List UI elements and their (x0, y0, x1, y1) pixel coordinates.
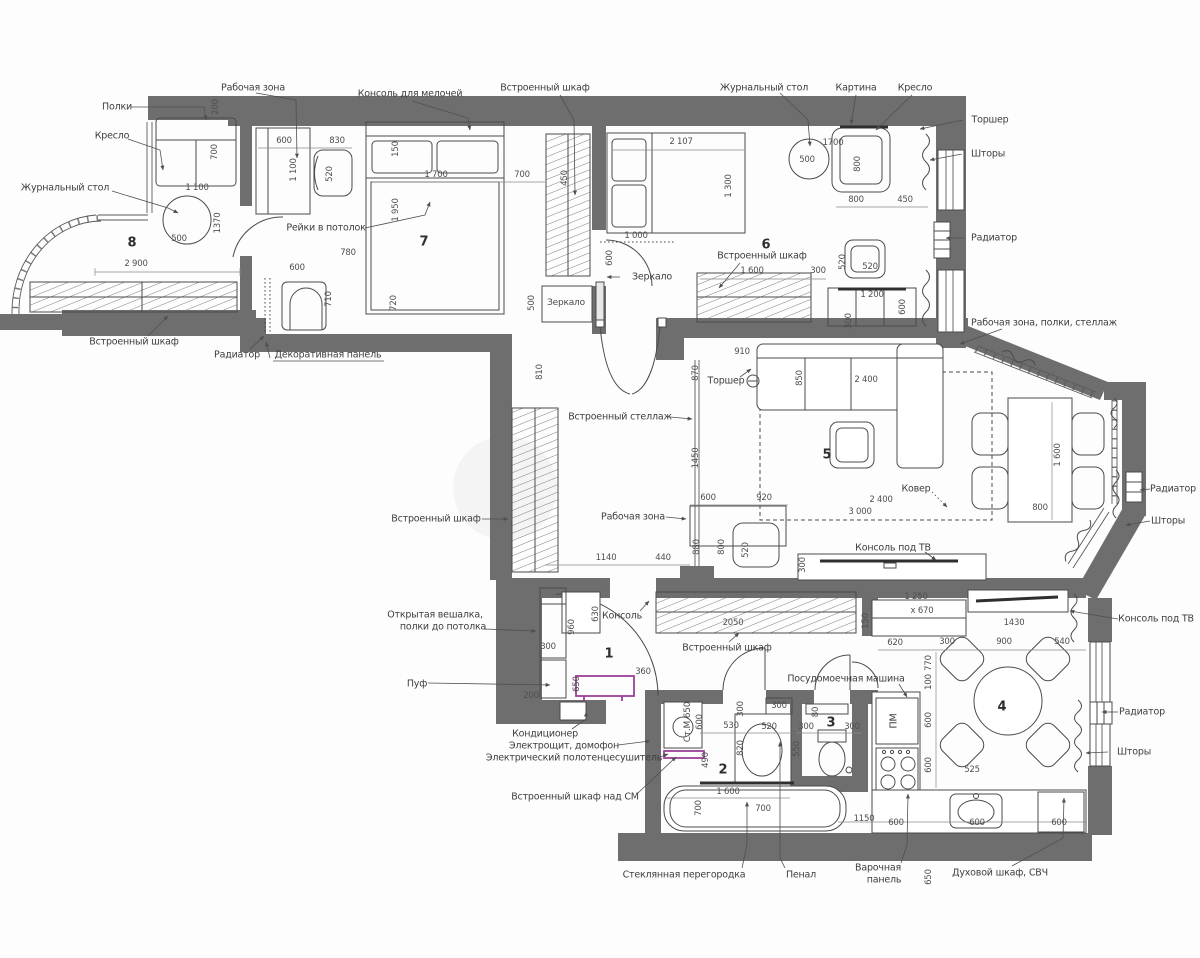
dimension-53: 300 (798, 557, 808, 573)
annotation-label-36: Электрический полотенцесушитель (486, 753, 662, 764)
dimension-30: 300 (810, 266, 826, 276)
annotation-label-35: Электрощит, домофон (509, 741, 619, 752)
dimension-49: 800 (717, 539, 727, 555)
dimension-16: 600 (289, 263, 305, 273)
annotation-label-43: Варочная (855, 863, 901, 874)
room-number-4: 4 (997, 700, 1006, 715)
annotation-label-41: Стеклянная перегородка (623, 870, 746, 881)
dimension-50: 520 (741, 542, 751, 558)
dimension-78: 1430 (1004, 618, 1025, 628)
dimension-87: 525 (964, 765, 980, 775)
annotation-label-12: Рейки в потолок (286, 223, 365, 234)
annotation-label-38: Посудомоечная машина (787, 674, 904, 685)
dimension-12: 700 (514, 170, 530, 180)
annotation-label-14: Радиатор (214, 350, 260, 361)
dimension-36: 810 (535, 364, 545, 380)
annotation-label-7: Картина (836, 83, 877, 94)
text-overlay: 87651234ПолкиКреслоЖурнальный столРабоча… (0, 0, 1200, 958)
dimension-54: 960 (567, 619, 577, 635)
annotation-label-47: ПМ (889, 714, 900, 729)
annotation-label-45: Духовой шкаф, СВЧ (952, 868, 1048, 879)
dimension-5: 2 900 (124, 259, 147, 269)
dimension-8: 1 100 (289, 158, 299, 181)
dimension-79: 620 (887, 638, 903, 648)
annotation-label-25: Радиатор (1150, 484, 1196, 495)
annotation-label-8: Кресло (898, 83, 933, 94)
dimension-76: 1 250 (904, 592, 927, 602)
dimension-65: 300 (736, 701, 746, 717)
dimension-6: 600 (276, 136, 292, 146)
dimension-90: 600 (969, 818, 985, 828)
dimension-56: 300 (540, 642, 556, 652)
annotation-label-33: Пуф (407, 679, 427, 690)
annotation-label-21: Торшер (707, 376, 744, 387)
room-number-3: 3 (826, 716, 835, 731)
dimension-28: 450 (897, 195, 913, 205)
annotation-label-5: Встроенный шкаф (500, 83, 589, 94)
floor-plan: 87651234ПолкиКреслоЖурнальный столРабоча… (0, 0, 1200, 958)
dimension-77: х 670 (911, 606, 934, 616)
annotation-label-42: Пенал (786, 870, 816, 881)
dimension-11: 1 700 (424, 170, 447, 180)
dimension-69: 1 600 (716, 787, 739, 797)
dimension-29: 1 600 (740, 266, 763, 276)
dimension-26: 800 (853, 156, 863, 172)
dimension-71: 700 (755, 804, 771, 814)
dimension-73: 300 (844, 722, 860, 732)
annotation-label-4: Консоль для мелочей (358, 89, 463, 100)
annotation-label-31: Открытая вешалка, (387, 610, 483, 621)
annotation-label-24: Ковер (901, 484, 930, 495)
dimension-81: 900 (996, 637, 1012, 647)
annotation-label-23: Рабочая зона (601, 512, 665, 523)
dimension-35: 300 (844, 313, 854, 329)
annotation-label-19: Рабочая зона, полки, стеллаж (971, 318, 1117, 329)
dimension-59: 650 (572, 676, 582, 692)
annotation-label-10: Шторы (971, 149, 1005, 160)
dimension-19: 600 (605, 250, 615, 266)
dimension-83: 770 (924, 655, 934, 671)
room-number-8: 8 (127, 236, 136, 251)
dimension-18: 720 (389, 295, 399, 311)
dimension-52: 440 (655, 553, 671, 563)
dimension-63: 490 (701, 752, 711, 768)
annotation-label-22: Встроенный шкаф (391, 514, 480, 525)
room-number-7: 7 (419, 235, 428, 250)
dimension-67: 520 (761, 722, 777, 732)
dimension-31: 520 (838, 254, 848, 270)
annotation-label-15: Декоративная панель (275, 350, 382, 361)
dimension-57: 200 (523, 691, 539, 701)
dimension-47: 800 (1032, 503, 1048, 513)
dimension-24: 1700 (823, 138, 844, 148)
annotation-label-0: Полки (102, 102, 132, 113)
dimension-41: 850 (795, 370, 805, 386)
dimension-40: 2 400 (854, 375, 877, 385)
dimension-2: 1 100 (185, 183, 208, 193)
dimension-68: 300 (771, 701, 787, 711)
dimension-9: 520 (325, 166, 335, 182)
dimension-74: 80 (811, 707, 821, 717)
dimension-55: 630 (591, 606, 601, 622)
dimension-60: 2050 (723, 618, 744, 628)
dimension-62: 600 (695, 714, 705, 730)
dimension-13: 450 (560, 170, 570, 186)
dimension-82: 540 (1054, 637, 1070, 647)
dimension-23: 1 300 (724, 174, 734, 197)
annotation-label-28: Консоль (602, 611, 642, 622)
annotation-label-34: Кондиционер (512, 729, 578, 740)
dimension-66: 820 (736, 740, 746, 756)
dimension-43: 920 (756, 493, 772, 503)
annotation-label-20: Встроенный стеллаж (568, 412, 672, 423)
annotation-label-32: полки до потолка (400, 622, 486, 633)
dimension-22: 2 107 (669, 137, 692, 147)
dimension-27: 800 (848, 195, 864, 205)
room-number-1: 1 (604, 647, 613, 662)
annotation-label-13: Встроенный шкаф (89, 337, 178, 348)
dimension-32: 520 (862, 262, 878, 272)
room-number-2: 2 (718, 763, 727, 778)
annotation-label-3: Рабочая зона (221, 83, 285, 94)
annotation-label-1: Кресло (95, 131, 130, 142)
dimension-10: 150 (391, 141, 401, 157)
dimension-15: 780 (340, 248, 356, 258)
dimension-61: 150 (861, 613, 871, 629)
dimension-4: 1370 (213, 213, 223, 234)
dimension-45: 3 000 (848, 507, 871, 517)
annotation-label-16: Зеркало (632, 272, 672, 283)
dimension-46: 1 600 (1053, 443, 1063, 466)
dimension-42: 600 (700, 493, 716, 503)
dimension-14: 1 950 (391, 198, 401, 221)
dimension-75: 550 (792, 741, 802, 757)
dimension-1: 700 (210, 144, 220, 160)
dimension-25: 500 (799, 155, 815, 165)
dimension-21: 500 (527, 295, 537, 311)
dimension-84: 100 (924, 674, 934, 690)
dimension-89: 600 (888, 818, 904, 828)
annotation-label-37: Встроенный шкаф над СМ (511, 792, 639, 803)
annotation-label-9: Торшер (971, 115, 1008, 126)
annotation-label-6: Журнальный стол (720, 83, 808, 94)
dimension-80: 300 (939, 637, 955, 647)
dimension-72: 300 (798, 722, 814, 732)
dimension-34: 600 (898, 299, 908, 315)
dimension-91: 600 (1051, 818, 1067, 828)
dimension-64: 530 (723, 721, 739, 731)
dimension-7: 830 (329, 136, 345, 146)
dimension-88: 1150 (854, 814, 875, 824)
dimension-33: 1 200 (860, 290, 883, 300)
dimension-44: 2 400 (869, 495, 892, 505)
dimension-51: 1140 (596, 553, 617, 563)
annotation-label-17: Зеркало (547, 298, 585, 308)
dimension-3: 500 (171, 234, 187, 244)
annotation-label-2: Журнальный стол (21, 183, 109, 194)
annotation-label-18: Встроенный шкаф (717, 251, 806, 262)
annotation-label-29: Встроенный шкаф (682, 643, 771, 654)
dimension-0: 200 (211, 99, 221, 115)
dimension-86: 600 (924, 757, 934, 773)
annotation-label-39: Радиатор (1119, 707, 1165, 718)
dimension-37: 910 (734, 347, 750, 357)
annotation-label-30: Консоль под ТВ (1118, 614, 1194, 625)
dimension-92: 650 (924, 869, 934, 885)
dimension-85: 600 (924, 712, 934, 728)
dimension-58: 360 (635, 667, 651, 677)
annotation-label-40: Шторы (1117, 747, 1151, 758)
dimension-70: 700 (694, 800, 704, 816)
annotation-label-26: Шторы (1151, 516, 1185, 527)
annotation-label-44: панель (867, 875, 902, 886)
dimension-48: 880 (692, 539, 702, 555)
annotation-label-46: Ст.М 650 (683, 702, 693, 743)
dimension-38: 870 (691, 365, 701, 381)
dimension-20: 1 000 (624, 231, 647, 241)
room-number-5: 5 (822, 448, 831, 463)
annotation-label-11: Радиатор (971, 233, 1017, 244)
dimension-39: 1450 (691, 448, 701, 469)
annotation-label-27: Консоль под ТВ (855, 543, 931, 554)
dimension-17: 710 (324, 291, 334, 307)
